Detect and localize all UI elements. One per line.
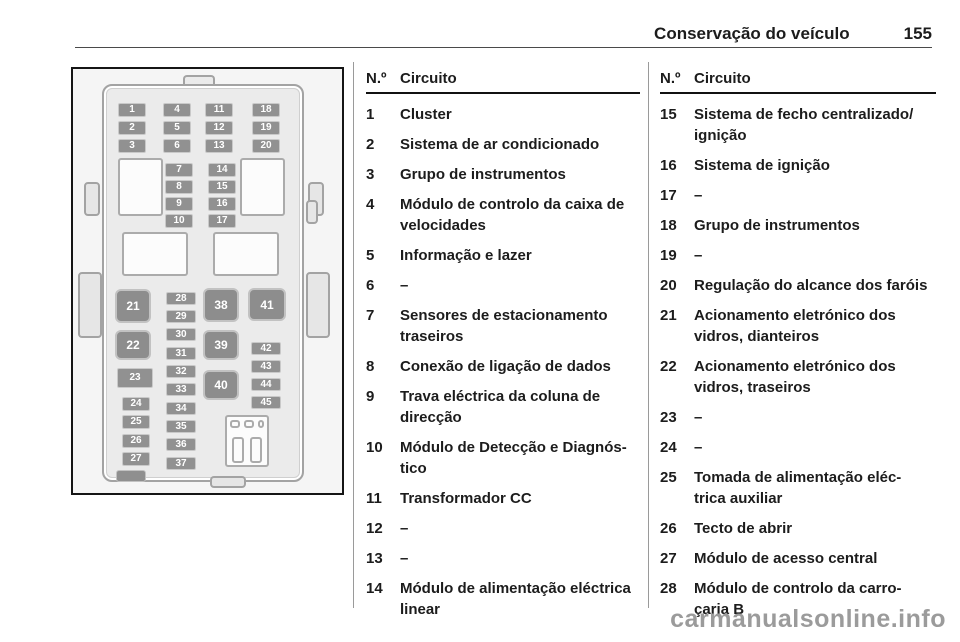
fuse-table-row: 7Sensores de estacionamentotraseiros <box>366 305 640 347</box>
fuse-table-row: 9Trava eléctrica da coluna dedirecção <box>366 386 640 428</box>
fuse-33: 33 <box>166 383 196 396</box>
empty-slot <box>213 232 279 276</box>
fuse-number: 12 <box>366 518 400 539</box>
fuse-5: 5 <box>163 121 191 135</box>
fuse-number: 21 <box>660 305 694 347</box>
fuse-table-column-1: N.º Circuito 1Cluster2Sistema de ar cond… <box>366 68 640 629</box>
circuit-label: Grupo de instrumentos <box>400 164 640 185</box>
fuse-16: 16 <box>208 197 236 211</box>
fuse-36: 36 <box>166 438 196 451</box>
fuse-table-row: 16Sistema de ignição <box>660 155 936 176</box>
circuit-label: Sistema de fecho centralizado/ignição <box>694 104 936 146</box>
circuit-label: – <box>694 407 936 428</box>
circuit-label: Tomada de alimentação eléc-trica auxilia… <box>694 467 936 509</box>
fuse-number: 11 <box>366 488 400 509</box>
fuse-30: 30 <box>166 328 196 341</box>
circuit-label: Conexão de ligação de dados <box>400 356 640 377</box>
fuse-29: 29 <box>166 310 196 323</box>
fuse-table-row: 10Módulo de Detecção e Diagnós-tico <box>366 437 640 479</box>
fuse-table-row: 3Grupo de instrumentos <box>366 164 640 185</box>
empty-slot <box>244 420 254 428</box>
fuse-number: 18 <box>660 215 694 236</box>
relay-22: 22 <box>115 330 151 360</box>
fuse-number: 16 <box>660 155 694 176</box>
fuse-diagram-layer: 1234561112131819207891014151617232425262… <box>76 72 344 494</box>
fuse-number: 24 <box>660 437 694 458</box>
fuse-number: 14 <box>366 578 400 620</box>
fuse-table-row: 27Módulo de acesso central <box>660 548 936 569</box>
relay-41: 41 <box>248 288 286 321</box>
fuse-43: 43 <box>251 360 281 373</box>
header-circuit: Circuito <box>694 68 751 89</box>
fuse-4: 4 <box>163 103 191 117</box>
fuse-number: 22 <box>660 356 694 398</box>
shell-clip <box>78 272 102 338</box>
fuse-table-row: 19– <box>660 245 936 266</box>
fuse-number: 2 <box>366 134 400 155</box>
relay-38: 38 <box>203 288 239 322</box>
header-number: N.º <box>366 68 400 89</box>
fuse-number: 20 <box>660 275 694 296</box>
fuse-number: 26 <box>660 518 694 539</box>
fuse-number: 7 <box>366 305 400 347</box>
fuse-table-header: N.º Circuito <box>366 68 640 94</box>
circuit-label: Regulação do alcance dos faróis <box>694 275 936 296</box>
fuse-number: 13 <box>366 548 400 569</box>
relay-40: 40 <box>203 370 239 400</box>
fuse-number: 9 <box>366 386 400 428</box>
empty-slot <box>250 437 262 463</box>
fuse-13: 13 <box>205 139 233 153</box>
fuse-24: 24 <box>122 397 150 411</box>
fuse-number: 1 <box>366 104 400 125</box>
section-title: Conservação do veículo <box>654 24 850 44</box>
circuit-label: Trava eléctrica da coluna dedirecção <box>400 386 640 428</box>
circuit-label: Acionamento eletrónico dosvidros, trasei… <box>694 356 936 398</box>
empty-slot <box>230 420 240 428</box>
fuse-7: 7 <box>165 163 193 177</box>
fuse-number: 15 <box>660 104 694 146</box>
fuse-10: 10 <box>165 214 193 228</box>
fuse-17: 17 <box>208 214 236 228</box>
fuse-26: 26 <box>122 434 150 448</box>
circuit-label: Módulo de controlo da caixa develocidade… <box>400 194 640 236</box>
circuit-label: Acionamento eletrónico dosvidros, diante… <box>694 305 936 347</box>
circuit-label: – <box>400 548 640 569</box>
fuse-20: 20 <box>252 139 280 153</box>
fuse-table-rows: 1Cluster2Sistema de ar condicionado3Grup… <box>366 104 640 620</box>
fuse-6: 6 <box>163 139 191 153</box>
circuit-label: Grupo de instrumentos <box>694 215 936 236</box>
fuse-table-row: 14Módulo de alimentação eléctricalinear <box>366 578 640 620</box>
column-divider <box>353 62 354 608</box>
fuse-table-row: 23– <box>660 407 936 428</box>
fuse-18: 18 <box>252 103 280 117</box>
fuse-number: 6 <box>366 275 400 296</box>
fuse-table-row: 11Transformador CC <box>366 488 640 509</box>
circuit-label: Transformador CC <box>400 488 640 509</box>
header-circuit: Circuito <box>400 68 457 89</box>
fuse-table-row: 18Grupo de instrumentos <box>660 215 936 236</box>
fuse-11: 11 <box>205 103 233 117</box>
empty-slot <box>240 158 285 216</box>
fuse-15: 15 <box>208 180 236 194</box>
relay-39: 39 <box>203 330 239 360</box>
page-header: Conservação do veículo 155 <box>654 24 932 44</box>
shell-clip <box>306 200 318 224</box>
connector-block <box>116 470 146 482</box>
fuse-table-row: 12– <box>366 518 640 539</box>
fuse-table-row: 21Acionamento eletrónico dosvidros, dian… <box>660 305 936 347</box>
circuit-label: – <box>694 185 936 206</box>
shell-clip <box>84 182 100 216</box>
fuse-45: 45 <box>251 396 281 409</box>
circuit-label: Módulo de Detecção e Diagnós-tico <box>400 437 640 479</box>
fuse-table-row: 4Módulo de controlo da caixa develocidad… <box>366 194 640 236</box>
fuse-27: 27 <box>122 452 150 466</box>
circuit-label: Informação e lazer <box>400 245 640 266</box>
circuit-label: – <box>694 437 936 458</box>
shell-clip <box>306 272 330 338</box>
fuse-2: 2 <box>118 121 146 135</box>
fuse-number: 5 <box>366 245 400 266</box>
fuse-9: 9 <box>165 197 193 211</box>
fuse-32: 32 <box>166 365 196 378</box>
fuse-table-row: 6– <box>366 275 640 296</box>
circuit-label: Tecto de abrir <box>694 518 936 539</box>
page-number: 155 <box>904 24 932 44</box>
watermark: carmanualsonline.info <box>670 605 946 634</box>
circuit-label: Módulo de acesso central <box>694 548 936 569</box>
fuse-number: 25 <box>660 467 694 509</box>
fuse-number: 17 <box>660 185 694 206</box>
empty-slot <box>258 420 264 428</box>
fuse-37: 37 <box>166 457 196 470</box>
fuse-25: 25 <box>122 415 150 429</box>
fuse-table-row: 20Regulação do alcance dos faróis <box>660 275 936 296</box>
fuse-8: 8 <box>165 180 193 194</box>
fuse-table-row: 17– <box>660 185 936 206</box>
shell-clip <box>210 476 246 488</box>
circuit-label: Módulo de alimentação eléctricalinear <box>400 578 640 620</box>
fuse-table-row: 26Tecto de abrir <box>660 518 936 539</box>
circuit-label: – <box>400 275 640 296</box>
fuse-number: 4 <box>366 194 400 236</box>
fuse-3: 3 <box>118 139 146 153</box>
circuit-label: Sensores de estacionamentotraseiros <box>400 305 640 347</box>
fuse-42: 42 <box>251 342 281 355</box>
fuse-1: 1 <box>118 103 146 117</box>
fuse-table-column-2: N.º Circuito 15Sistema de fecho centrali… <box>660 68 936 629</box>
fuse-number: 19 <box>660 245 694 266</box>
fuse-23: 23 <box>117 368 153 388</box>
fuse-12: 12 <box>205 121 233 135</box>
circuit-label: Cluster <box>400 104 640 125</box>
header-rule <box>75 47 932 48</box>
fuse-44: 44 <box>251 378 281 391</box>
fuse-number: 27 <box>660 548 694 569</box>
fuse-table-header: N.º Circuito <box>660 68 936 94</box>
fuse-table-row: 2Sistema de ar condicionado <box>366 134 640 155</box>
fuse-table-row: 1Cluster <box>366 104 640 125</box>
fuse-table-row: 24– <box>660 437 936 458</box>
fuse-table-row: 8Conexão de ligação de dados <box>366 356 640 377</box>
fuse-28: 28 <box>166 292 196 305</box>
fuse-number: 23 <box>660 407 694 428</box>
fuse-table-row: 25Tomada de alimentação eléc-trica auxil… <box>660 467 936 509</box>
empty-slot <box>232 437 244 463</box>
fuse-34: 34 <box>166 402 196 415</box>
fuse-14: 14 <box>208 163 236 177</box>
fuse-number: 8 <box>366 356 400 377</box>
circuit-label: Sistema de ar condicionado <box>400 134 640 155</box>
fuse-table-row: 13– <box>366 548 640 569</box>
relay-21: 21 <box>115 289 151 323</box>
fuse-table-row: 22Acionamento eletrónico dosvidros, tras… <box>660 356 936 398</box>
circuit-label: – <box>400 518 640 539</box>
fuse-number: 3 <box>366 164 400 185</box>
fuse-35: 35 <box>166 420 196 433</box>
fuse-table-rows: 15Sistema de fecho centralizado/ignição1… <box>660 104 936 620</box>
empty-slot <box>122 232 188 276</box>
header-number: N.º <box>660 68 694 89</box>
circuit-label: Sistema de ignição <box>694 155 936 176</box>
column-divider <box>648 62 649 608</box>
empty-slot <box>118 158 163 216</box>
fuse-table-row: 15Sistema de fecho centralizado/ignição <box>660 104 936 146</box>
fuse-table-row: 5Informação e lazer <box>366 245 640 266</box>
circuit-label: – <box>694 245 936 266</box>
fuse-19: 19 <box>252 121 280 135</box>
fuse-number: 10 <box>366 437 400 479</box>
fuse-31: 31 <box>166 347 196 360</box>
